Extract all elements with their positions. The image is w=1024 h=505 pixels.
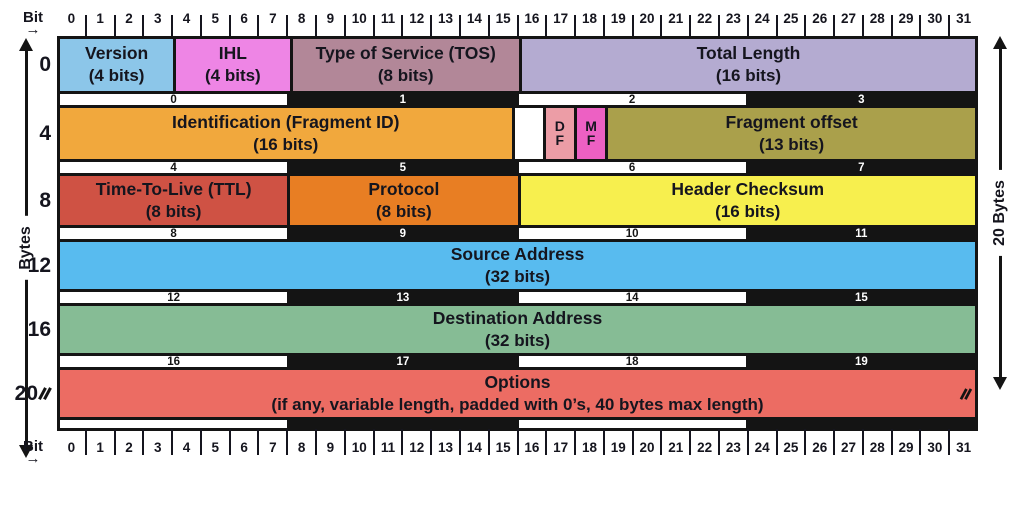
- word-row-20: 20 Options (if any, variable length, pad…: [57, 367, 978, 420]
- bit-number: 8: [287, 431, 316, 469]
- bit-scale-bottom: Bit → 0123456789101112131415161718192021…: [57, 431, 978, 469]
- bit-number: 28: [863, 431, 892, 469]
- bit-number: 15: [489, 6, 518, 36]
- field-name: Version: [85, 43, 148, 65]
- bit-number: 12: [402, 6, 431, 36]
- field-size: (4 bits): [205, 65, 261, 86]
- bit-number: 29: [892, 6, 921, 36]
- bit-number: 21: [661, 431, 690, 469]
- octet-number: 13: [287, 292, 516, 303]
- octet-number: [287, 420, 516, 428]
- bit-number: 31: [949, 6, 978, 36]
- octet-number: 9: [287, 228, 516, 239]
- field-reserved-flag: [512, 108, 543, 159]
- bit-number: 6: [230, 431, 259, 469]
- twenty-bytes-axis-label: 20 Bytes: [991, 170, 1009, 256]
- bit-number: 31: [949, 431, 978, 469]
- bit-number: 5: [201, 431, 230, 469]
- field-size: (8 bits): [146, 201, 202, 222]
- field-name: Destination Address: [433, 308, 603, 330]
- field-total-length: Total Length (16 bits): [519, 39, 975, 91]
- word-row-4: 4 Identification (Fragment ID) (16 bits)…: [57, 105, 978, 162]
- bit-number: 6: [230, 6, 259, 36]
- field-size: (13 bits): [759, 134, 824, 155]
- octet-number: [60, 420, 287, 428]
- octet-number: 3: [746, 94, 975, 105]
- field-df-flag: D F: [543, 108, 574, 159]
- field-size: (if any, variable length, padded with 0’…: [271, 394, 763, 415]
- bit-number: 25: [777, 431, 806, 469]
- octet-number: [746, 420, 975, 428]
- bit-axis-label-top: Bit →: [16, 10, 50, 36]
- bit-number: 26: [805, 6, 834, 36]
- field-size: (32 bits): [485, 266, 550, 287]
- field-size: (16 bits): [253, 134, 318, 155]
- byte-offset-label-12: 12: [28, 254, 51, 278]
- octet-number: 10: [517, 228, 746, 239]
- octet-number: 17: [287, 356, 516, 367]
- bit-number: 27: [834, 431, 863, 469]
- byte-offset-12: 12: [28, 254, 51, 278]
- bit-number: 3: [143, 431, 172, 469]
- field-size: (4 bits): [89, 65, 145, 86]
- octet-number: 19: [746, 356, 975, 367]
- field-identification: Identification (Fragment ID) (16 bits): [60, 108, 512, 159]
- bit-number: 2: [115, 6, 144, 36]
- octet-number: 12: [60, 292, 287, 303]
- bit-number: 30: [920, 6, 949, 36]
- field-fragment-offset: Fragment offset (13 bits): [605, 108, 975, 159]
- octet-number: 0: [60, 94, 287, 105]
- byte-offset-0: 0: [39, 53, 51, 77]
- octet-number: [517, 420, 746, 428]
- word-row-16: 16 Destination Address (32 bits): [57, 303, 978, 356]
- field-size: (32 bits): [485, 330, 550, 351]
- field-ihl: IHL (4 bits): [173, 39, 289, 91]
- byte-offset-8: 8: [39, 189, 51, 213]
- bit-number: 21: [661, 6, 690, 36]
- bit-number: 1: [86, 6, 115, 36]
- bit-number: 23: [719, 6, 748, 36]
- bit-number: 11: [374, 431, 403, 469]
- bit-number: 29: [892, 431, 921, 469]
- octet-number: 6: [517, 162, 746, 173]
- bit-number: 17: [546, 6, 575, 36]
- bit-number: 18: [575, 6, 604, 36]
- bit-number: 13: [431, 6, 460, 36]
- bit-number: 2: [115, 431, 144, 469]
- bit-number: 28: [863, 6, 892, 36]
- bit-numbers-bottom: 0123456789101112131415161718192021222324…: [57, 431, 978, 469]
- header-table: Bit → 0123456789101112131415161718192021…: [57, 6, 978, 469]
- bit-number: 13: [431, 431, 460, 469]
- byte-offset-label-20: 20: [15, 382, 51, 406]
- field-size: (16 bits): [715, 201, 780, 222]
- break-mark-icon: [38, 386, 51, 401]
- octet-number: 16: [60, 356, 287, 367]
- octet-number: 11: [746, 228, 975, 239]
- octet-number: 14: [517, 292, 746, 303]
- byte-offset-label-0: 0: [39, 53, 51, 77]
- octet-number: 4: [60, 162, 287, 173]
- arrow-down-icon: [993, 377, 1007, 390]
- field-name: Time-To-Live (TTL): [96, 179, 252, 201]
- bit-number: 16: [518, 6, 547, 36]
- octet-number: 2: [517, 94, 746, 105]
- octet-number: 1: [287, 94, 516, 105]
- bit-number: 7: [258, 431, 287, 469]
- bit-number: 4: [172, 6, 201, 36]
- bit-number: 9: [316, 6, 345, 36]
- bit-number: 0: [57, 431, 86, 469]
- bit-number: 3: [143, 6, 172, 36]
- word-row-12: 12 Source Address (32 bits): [57, 239, 978, 292]
- field-protocol: Protocol (8 bits): [287, 176, 517, 225]
- bit-number: 30: [920, 431, 949, 469]
- field-ttl: Time-To-Live (TTL) (8 bits): [60, 176, 287, 225]
- bit-number: 10: [345, 431, 374, 469]
- field-size: F: [556, 134, 565, 147]
- field-header-checksum: Header Checksum (16 bits): [518, 176, 976, 225]
- byte-offset-16: 16: [28, 318, 51, 342]
- bit-numbers-top: 0123456789101112131415161718192021222324…: [57, 6, 978, 36]
- bit-right-arrow-icon: →: [16, 453, 50, 465]
- field-type-of-service: Type of Service (TOS) (8 bits): [290, 39, 520, 91]
- field-name: IHL: [219, 43, 247, 65]
- bit-number: 19: [604, 431, 633, 469]
- bit-number: 25: [777, 6, 806, 36]
- bit-number: 17: [546, 431, 575, 469]
- bit-number: 4: [172, 431, 201, 469]
- field-size: (8 bits): [376, 201, 432, 222]
- byte-offset-label-4: 4: [39, 122, 51, 146]
- field-name: Total Length: [697, 43, 801, 65]
- bit-number: 22: [690, 6, 719, 36]
- bit-number: 10: [345, 6, 374, 36]
- bit-number: 16: [518, 431, 547, 469]
- bit-right-arrow-icon: →: [16, 24, 50, 36]
- byte-offset-20: 20: [15, 382, 38, 406]
- twenty-bytes-axis-arrow: 20 Bytes: [992, 36, 1008, 390]
- arrow-up-icon: [19, 38, 33, 51]
- bit-number: 27: [834, 6, 863, 36]
- field-name: Fragment offset: [725, 112, 857, 134]
- field-name: Identification (Fragment ID): [172, 112, 400, 134]
- bit-number: 8: [287, 6, 316, 36]
- field-size: F: [587, 134, 596, 147]
- field-name: Options: [484, 372, 550, 394]
- bit-number: 14: [460, 6, 489, 36]
- bit-number: 0: [57, 6, 86, 36]
- field-destination-address: Destination Address (32 bits): [60, 306, 975, 353]
- bit-axis-label-bottom: Bit →: [16, 439, 50, 465]
- bit-number: 11: [374, 6, 403, 36]
- octet-number: 7: [746, 162, 975, 173]
- bit-number: 26: [805, 431, 834, 469]
- field-name: Header Checksum: [671, 179, 824, 201]
- break-mark-icon: [960, 387, 972, 401]
- byte-offset-4: 4: [39, 122, 51, 146]
- ipv4-header-diagram: Bytes 20 Bytes Bit → 0123456789101112131…: [0, 0, 1024, 505]
- bit-number: 20: [633, 431, 662, 469]
- bit-number: 15: [489, 431, 518, 469]
- bit-number: 7: [258, 6, 287, 36]
- octet-number: 15: [746, 292, 975, 303]
- bit-scale-top: Bit → 0123456789101112131415161718192021…: [57, 6, 978, 36]
- bit-number: 18: [575, 431, 604, 469]
- field-size: (16 bits): [716, 65, 781, 86]
- field-version: Version (4 bits): [60, 39, 173, 91]
- byte-offset-label-8: 8: [39, 189, 51, 213]
- bit-number: 23: [719, 431, 748, 469]
- field-mf-flag: M F: [574, 108, 605, 159]
- field-source-address: Source Address (32 bits): [60, 242, 975, 289]
- bit-number: 19: [604, 6, 633, 36]
- field-name: Protocol: [368, 179, 439, 201]
- bit-number: 24: [748, 6, 777, 36]
- field-name: Type of Service (TOS): [316, 43, 496, 65]
- arrow-up-icon: [993, 36, 1007, 49]
- bit-number: 22: [690, 431, 719, 469]
- byte-offset-label-16: 16: [28, 318, 51, 342]
- octet-number: 5: [287, 162, 516, 173]
- octet-number: 8: [60, 228, 287, 239]
- field-size: (8 bits): [378, 65, 434, 86]
- field-options: Options (if any, variable length, padded…: [60, 370, 975, 417]
- word-row-0: 0 Version (4 bits) IHL (4 bits) Type of …: [57, 36, 978, 94]
- field-name: Source Address: [451, 244, 585, 266]
- bit-number: 1: [86, 431, 115, 469]
- word-row-8: 8 Time-To-Live (TTL) (8 bits) Protocol (…: [57, 173, 978, 228]
- bit-number: 20: [633, 6, 662, 36]
- bit-number: 5: [201, 6, 230, 36]
- bit-number: 14: [460, 431, 489, 469]
- bit-number: 9: [316, 431, 345, 469]
- bit-number: 12: [402, 431, 431, 469]
- octet-number: 18: [517, 356, 746, 367]
- bit-number: 24: [748, 431, 777, 469]
